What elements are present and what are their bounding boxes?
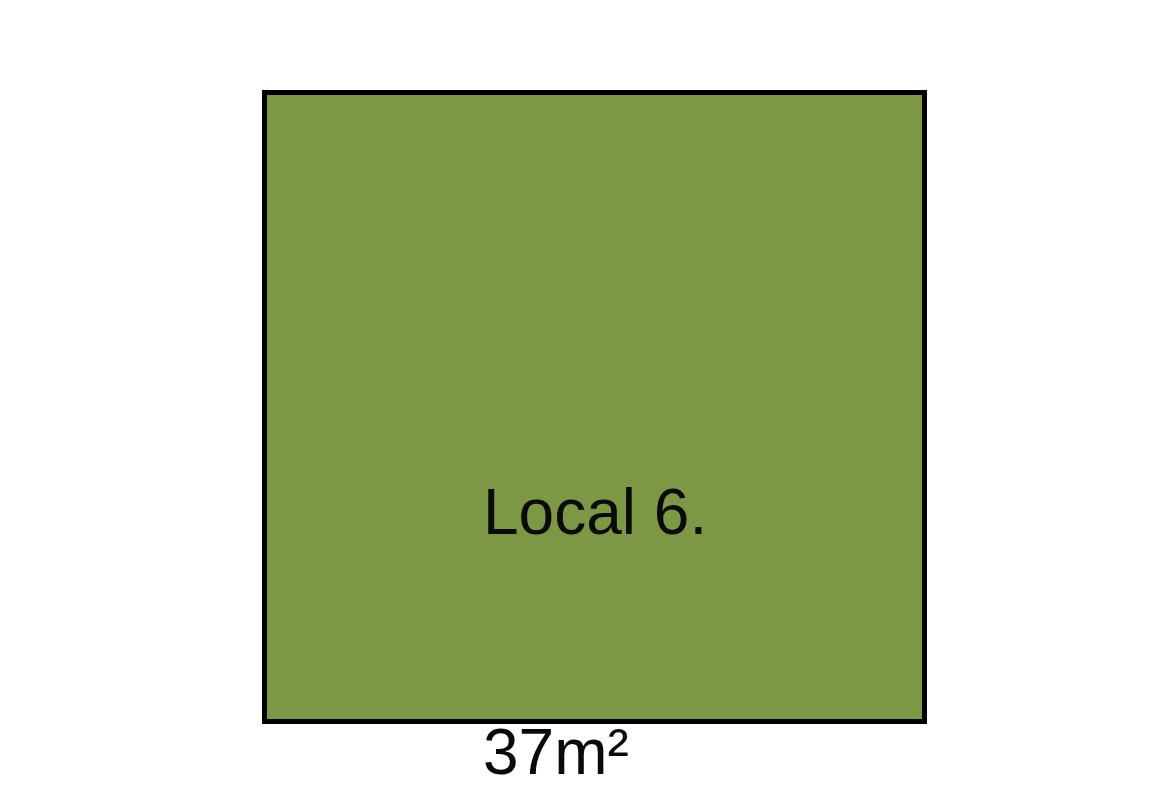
- parcel-area: 37m²: [483, 712, 707, 792]
- parcel-name: Local 6.: [483, 472, 707, 552]
- parcel-local-6[interactable]: Local 6. 37m²: [262, 90, 927, 724]
- floorplan-canvas: Local 6. 37m²: [0, 0, 1159, 805]
- parcel-label: Local 6. 37m²: [483, 312, 707, 805]
